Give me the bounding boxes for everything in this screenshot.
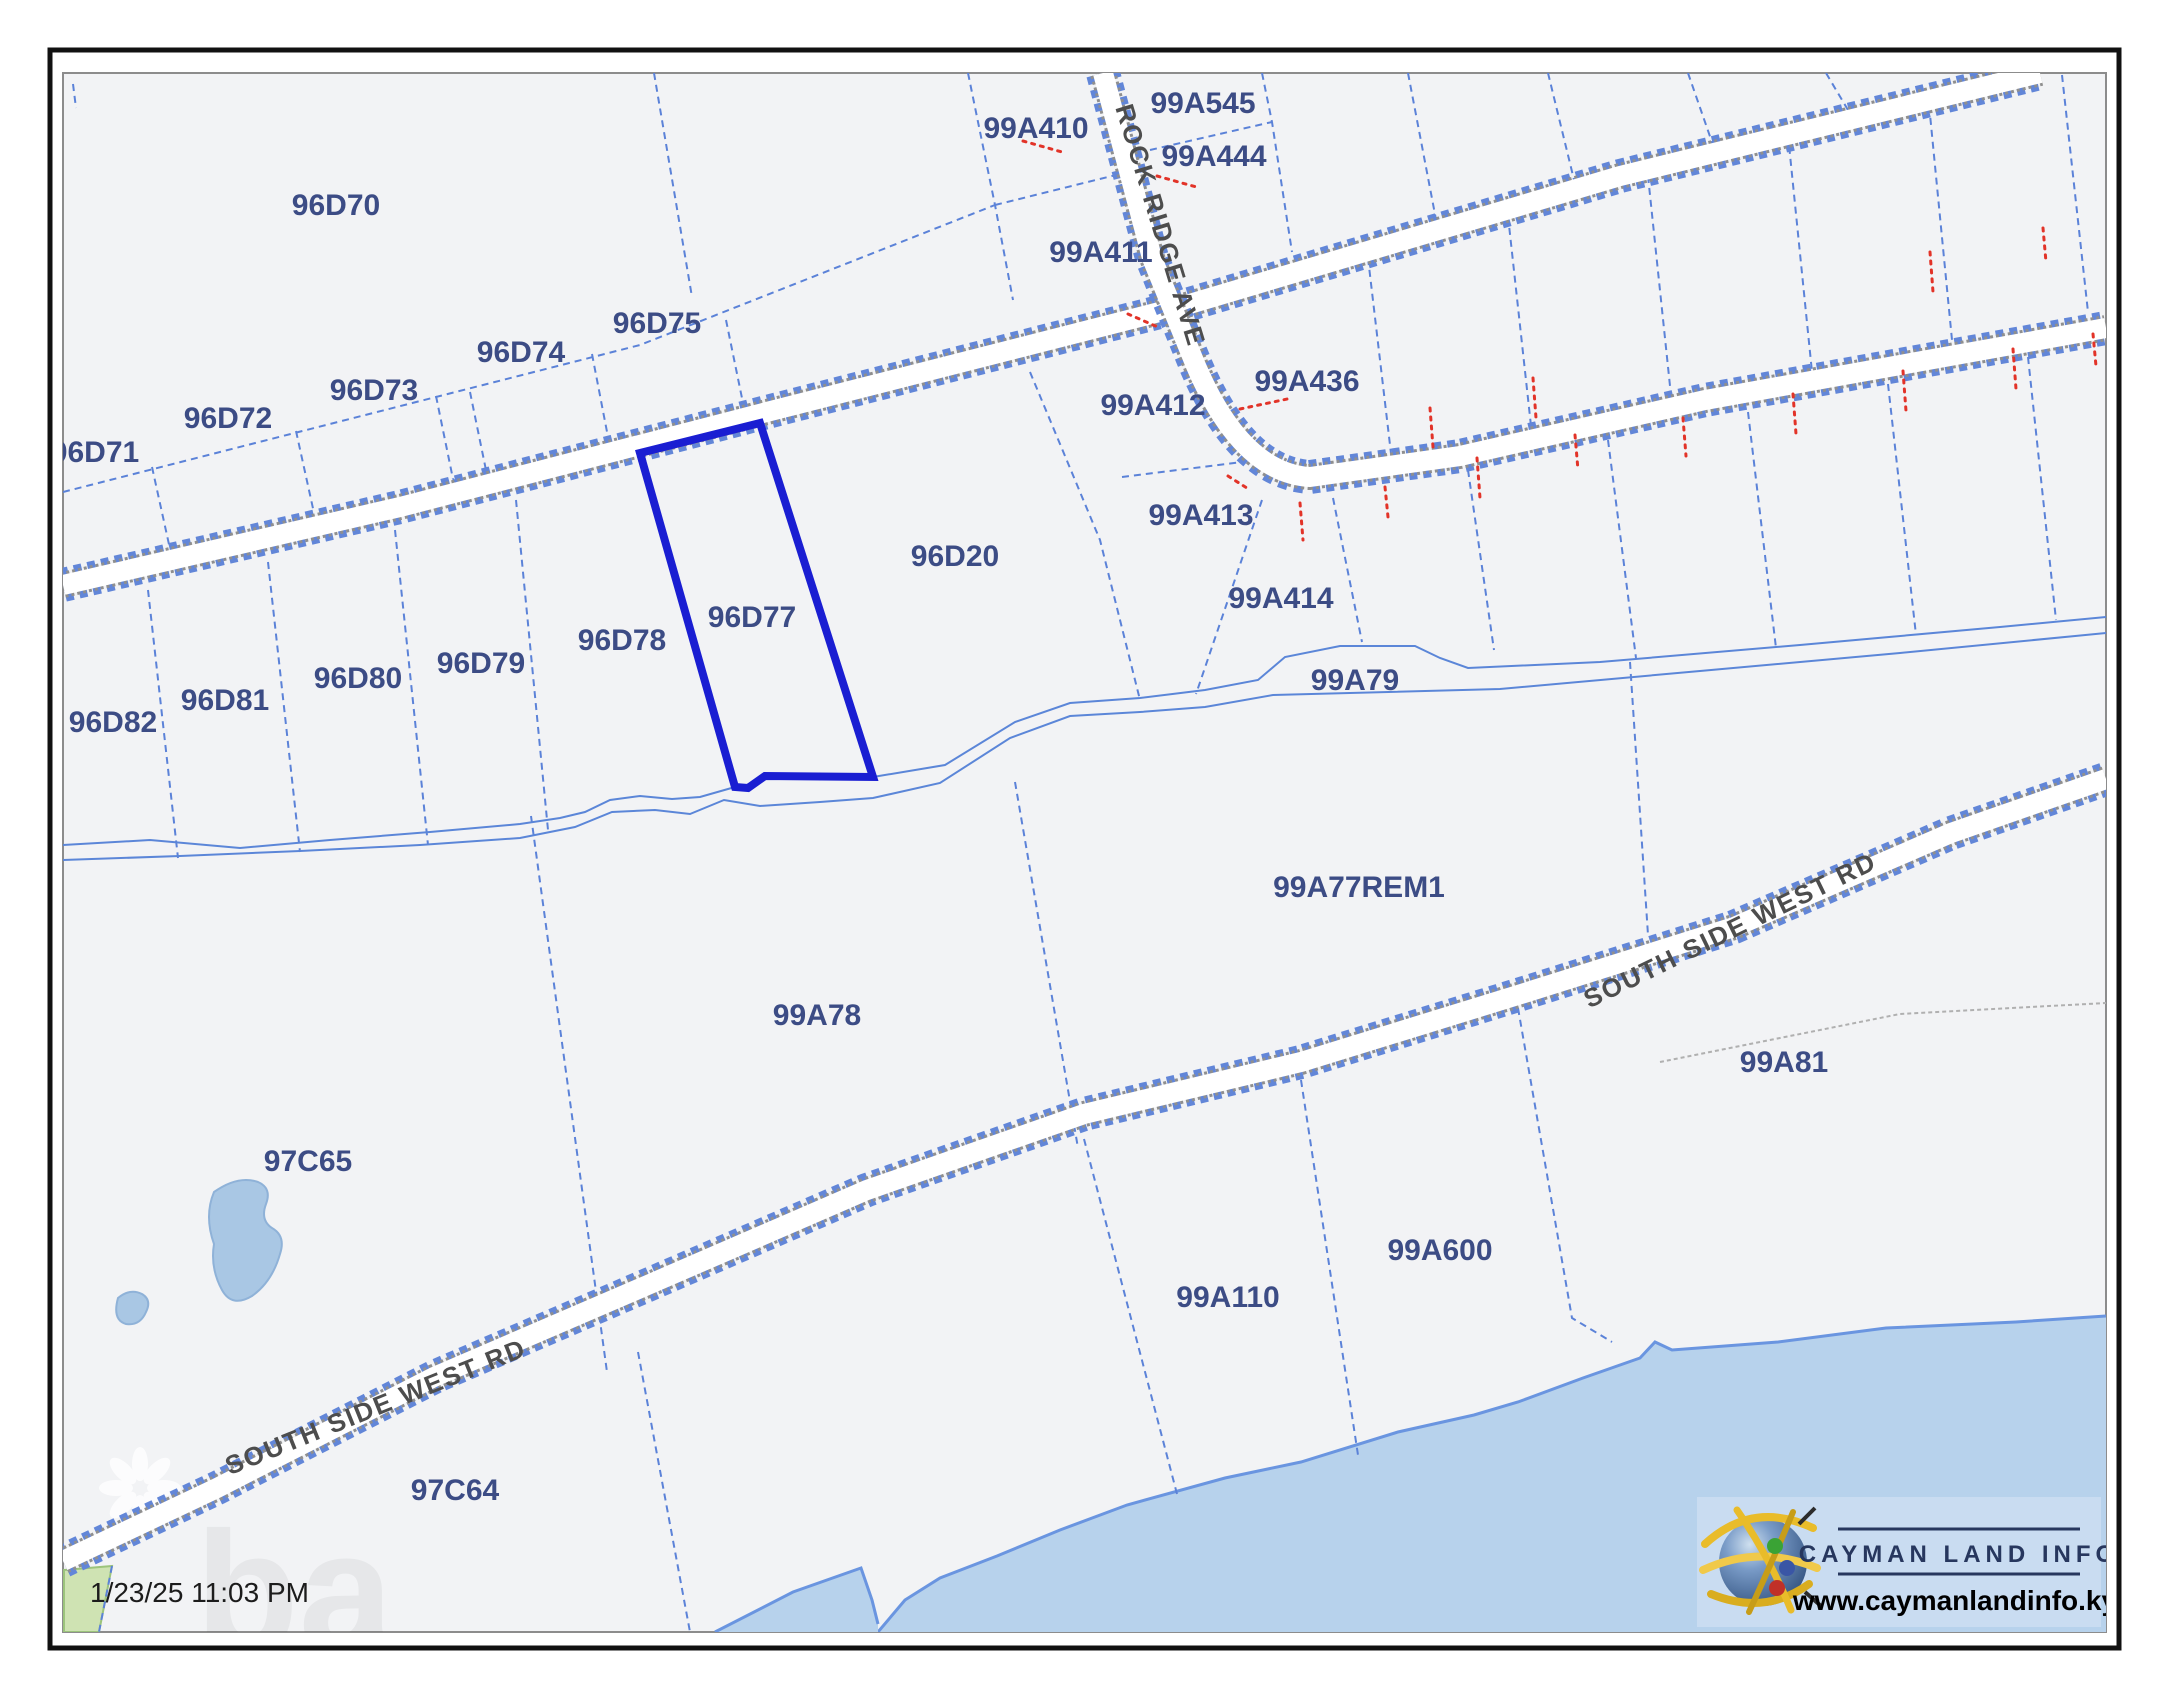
parcel-label-99A414[interactable]: 99A414 [1228, 582, 1333, 615]
parcel-label-99A410[interactable]: 99A410 [983, 112, 1088, 145]
parcel-label-96D70[interactable]: 96D70 [292, 189, 380, 222]
parcel-label-99A78[interactable]: 99A78 [773, 999, 861, 1032]
parcel-label-99A79[interactable]: 99A79 [1311, 664, 1399, 697]
parcel-label-96D73[interactable]: 96D73 [330, 374, 418, 407]
parcel-label-99A110[interactable]: 99A110 [1176, 1281, 1279, 1314]
parcel-label-96D72[interactable]: 96D72 [184, 402, 272, 435]
cadastral-map[interactable]: ba [0, 0, 2168, 1700]
parcel-label-96D81[interactable]: 96D81 [181, 684, 269, 717]
parcel-label-96D80[interactable]: 96D80 [314, 662, 402, 695]
parcel-label-96D74[interactable]: 96D74 [477, 336, 566, 369]
parcel-label-97C65[interactable]: 97C65 [264, 1145, 352, 1178]
parcel-label-96D78[interactable]: 96D78 [578, 624, 666, 657]
parcel-label-99A444[interactable]: 99A444 [1161, 140, 1266, 173]
parcel-label-96D77[interactable]: 96D77 [708, 601, 796, 634]
logo-block: CAYMAN LAND INFO www.caymanlandinfo.ky [1697, 1497, 2119, 1627]
parcel-label-99A413[interactable]: 99A413 [1148, 499, 1253, 532]
parcel-label-99A77REM1[interactable]: 99A77REM1 [1273, 871, 1445, 904]
logo-url[interactable]: www.caymanlandinfo.ky [1792, 1585, 2118, 1616]
parcel-label-96D79[interactable]: 96D79 [437, 647, 525, 680]
parcel-label-99A411[interactable]: 99A411 [1049, 236, 1152, 269]
parcel-label-96D75[interactable]: 96D75 [613, 307, 701, 340]
timestamp: 1/23/25 11:03 PM [90, 1577, 309, 1608]
cadastral-map-viewport[interactable]: ba [0, 0, 2168, 1700]
parcel-label-96D71[interactable]: 96D71 [51, 436, 139, 469]
parcel-label-97C64[interactable]: 97C64 [411, 1474, 500, 1507]
parcel-label-99A436[interactable]: 99A436 [1254, 365, 1359, 398]
parcel-label-99A600[interactable]: 99A600 [1387, 1234, 1492, 1267]
parcel-label-99A412[interactable]: 99A412 [1100, 389, 1205, 422]
parcel-label-96D20[interactable]: 96D20 [911, 540, 999, 573]
parcel-label-99A545[interactable]: 99A545 [1150, 87, 1255, 120]
parcel-label-96D82[interactable]: 96D82 [69, 706, 157, 739]
logo-title[interactable]: CAYMAN LAND INFO [1799, 1541, 2119, 1568]
parcel-label-99A81[interactable]: 99A81 [1740, 1046, 1828, 1079]
